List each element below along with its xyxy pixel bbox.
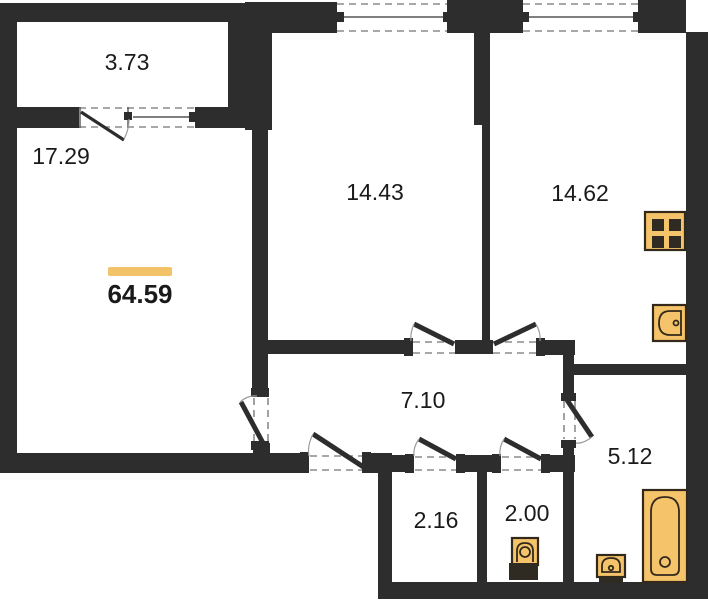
wall bbox=[686, 32, 708, 599]
room-area-living-room: 17.29 bbox=[32, 143, 90, 169]
stove-icon bbox=[645, 212, 685, 250]
room-area-wc: 2.00 bbox=[505, 500, 550, 526]
door-kitchen bbox=[493, 324, 545, 356]
door-balcony bbox=[80, 107, 132, 140]
washbasin-icon bbox=[597, 555, 625, 583]
wall bbox=[564, 364, 688, 375]
room-area-balcony: 3.73 bbox=[105, 49, 150, 75]
walls bbox=[0, 0, 708, 599]
wall bbox=[482, 125, 490, 340]
kitchen-sink-icon bbox=[653, 305, 686, 341]
wall bbox=[252, 110, 268, 396]
door-wc bbox=[492, 439, 550, 473]
room-area-kitchen: 14.62 bbox=[551, 180, 609, 206]
wall bbox=[378, 453, 392, 599]
wall bbox=[17, 107, 79, 128]
wall bbox=[455, 340, 493, 354]
door-storage bbox=[405, 439, 465, 473]
wall bbox=[447, 0, 523, 33]
wall bbox=[638, 0, 686, 33]
wall bbox=[0, 3, 248, 22]
wall bbox=[378, 582, 708, 599]
window-bedroom bbox=[334, 4, 453, 31]
floor-plan: 3.73 17.29 14.43 14.62 7.10 5.12 2.16 2.… bbox=[0, 0, 708, 600]
room-area-bedroom: 14.43 bbox=[346, 179, 404, 205]
window-kitchen bbox=[519, 4, 643, 31]
wall bbox=[563, 354, 574, 394]
room-area-bathroom: 5.12 bbox=[608, 443, 653, 469]
wall bbox=[392, 455, 406, 472]
wall bbox=[474, 33, 490, 125]
total-area-label: 64.59 bbox=[107, 279, 172, 309]
bathtub-icon bbox=[643, 490, 687, 582]
wall bbox=[267, 340, 406, 354]
room-area-hallway: 7.10 bbox=[401, 387, 446, 413]
wall bbox=[477, 472, 487, 584]
door-bedroom bbox=[404, 324, 455, 356]
door-living-room bbox=[240, 388, 269, 450]
wall bbox=[0, 3, 17, 473]
door-bathroom bbox=[561, 393, 592, 448]
total-area-accent-bar bbox=[108, 267, 172, 276]
door-entrance bbox=[300, 434, 371, 473]
floor-plan-drawing: 3.73 17.29 14.43 14.62 7.10 5.12 2.16 2.… bbox=[0, 0, 708, 600]
room-area-storage: 2.16 bbox=[414, 507, 459, 533]
toilet-icon bbox=[509, 538, 538, 580]
total-area: 64.59 bbox=[107, 267, 172, 309]
